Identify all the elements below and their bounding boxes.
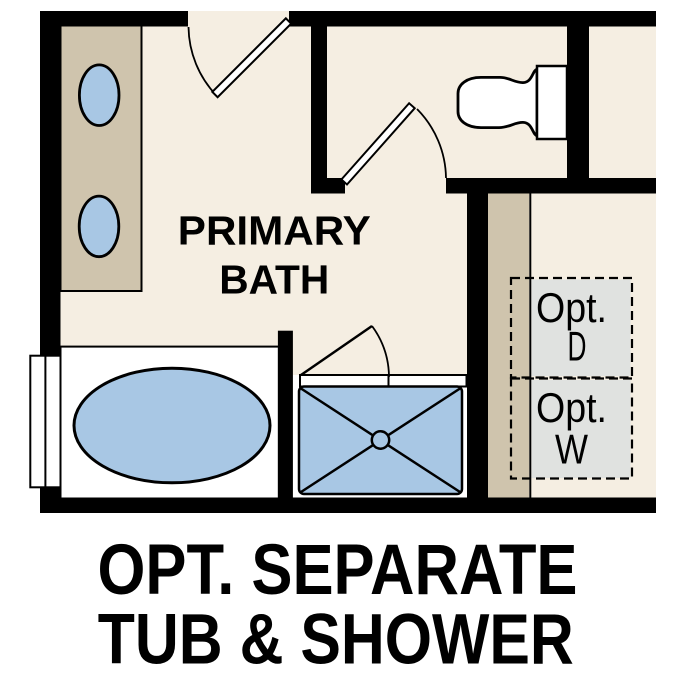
svg-text:BATH: BATH — [219, 257, 329, 303]
svg-text:W: W — [555, 426, 588, 473]
svg-text:D: D — [568, 323, 587, 370]
svg-text:TUB & SHOWER: TUB & SHOWER — [98, 601, 574, 680]
svg-text:Opt.: Opt. — [536, 384, 607, 431]
svg-text:OPT. SEPARATE: OPT. SEPARATE — [98, 531, 578, 610]
svg-text:PRIMARY: PRIMARY — [178, 208, 371, 254]
